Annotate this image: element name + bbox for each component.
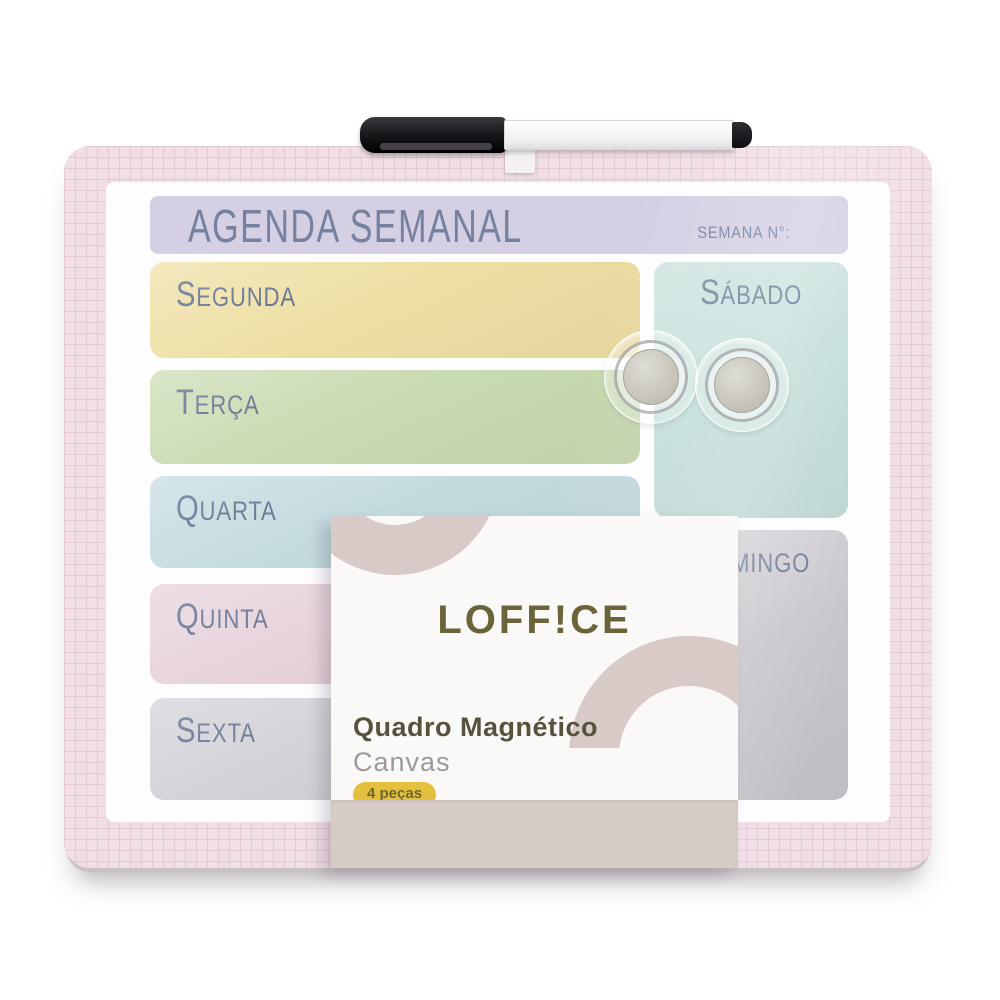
title-bar: AGENDA SEMANAL SEMANA N°: — [150, 196, 848, 254]
magnet-right — [695, 338, 789, 432]
arc-decoration-top-left — [331, 516, 500, 575]
day-label-sexta: Sexta — [176, 710, 256, 751]
week-number-label: SEMANA N°: — [697, 223, 790, 243]
day-label-sabado: Sábado — [700, 272, 802, 313]
product-line: Canvas — [353, 747, 451, 778]
day-block-terca: Terça — [150, 370, 640, 464]
marker-cap-clip — [380, 143, 492, 150]
product-card: LOFF!CE Quadro Magnético Canvas 4 peças — [331, 516, 738, 868]
marker-cap — [360, 117, 506, 153]
magnet-blister-ring — [705, 348, 779, 422]
day-label-segunda: Segunda — [176, 274, 296, 315]
product-name: Quadro Magnético — [353, 712, 598, 743]
day-label-quinta: Quinta — [176, 596, 268, 637]
day-label-wrap: Sábado — [654, 272, 848, 313]
marker-end-plug — [732, 122, 752, 148]
card-bottom-band — [331, 800, 738, 868]
day-block-segunda: Segunda — [150, 262, 640, 358]
day-label-quarta: Quarta — [176, 488, 277, 529]
magnet-left — [604, 330, 698, 424]
marker-pen — [360, 114, 752, 176]
brand-logo: LOFF!CE — [331, 598, 738, 643]
board-title: AGENDA SEMANAL — [188, 196, 523, 254]
product-photo: AGENDA SEMANAL SEMANA N°: Segunda Terça … — [0, 0, 1000, 1000]
day-label-terca: Terça — [176, 382, 259, 423]
magnet-disc — [714, 357, 770, 413]
magnet-blister-ring — [614, 340, 688, 414]
marker-barrel — [504, 120, 734, 150]
magnet-disc — [623, 349, 679, 405]
